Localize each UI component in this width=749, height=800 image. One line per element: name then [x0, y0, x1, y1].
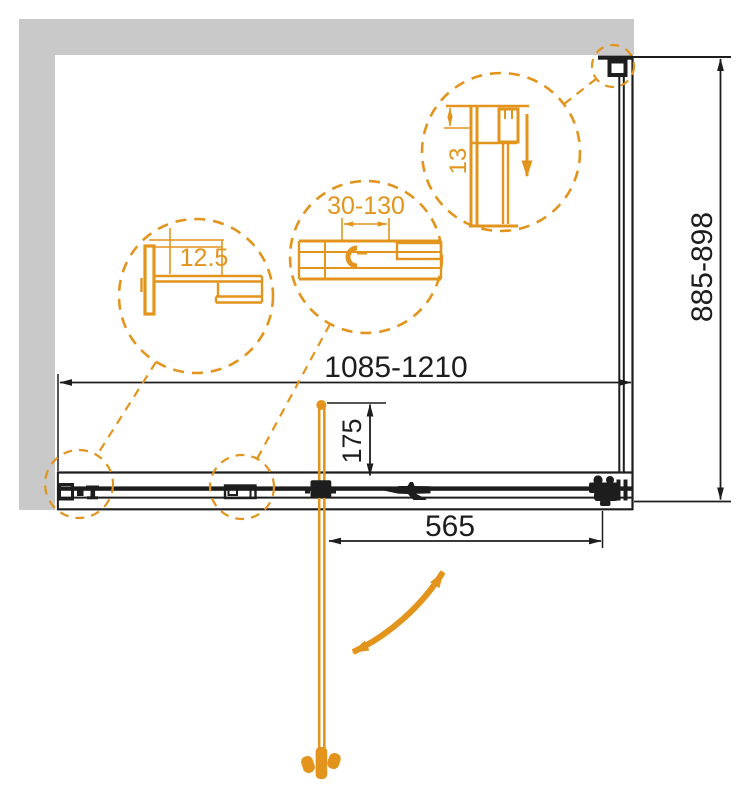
door-width-label: 565 — [425, 510, 475, 543]
bracket-label: 13 — [445, 148, 472, 175]
detail-adjustment: 30-130 — [290, 181, 442, 333]
top-wall-bracket — [598, 56, 633, 76]
wall-section — [19, 19, 634, 510]
dimension-pivot-offset: 175 — [327, 403, 386, 476]
dimension-door-width: 565 — [329, 510, 603, 548]
adjustment-label: 30-130 — [327, 192, 405, 220]
bottom-rail — [57, 472, 633, 510]
pivot-offset-label: 175 — [337, 418, 367, 463]
wall-top — [19, 19, 634, 55]
wall-left — [19, 19, 55, 510]
pivot-roller — [305, 480, 336, 498]
wall-profile-label: 12.5 — [180, 244, 229, 272]
overall-width-label: 1085-1210 — [324, 351, 467, 384]
door-knob — [300, 747, 343, 779]
overall-depth-label: 885-898 — [686, 212, 719, 322]
door-swing-arrow — [353, 572, 443, 652]
detail-bracket: 13 — [422, 73, 580, 231]
detail-wall-profile: 12.5 — [119, 219, 273, 373]
dimension-overall-depth: 885-898 — [634, 59, 731, 502]
door-open-position — [300, 400, 343, 779]
shower-enclosure-technical-drawing: 1085-1210 885-898 175 565 — [0, 0, 749, 800]
